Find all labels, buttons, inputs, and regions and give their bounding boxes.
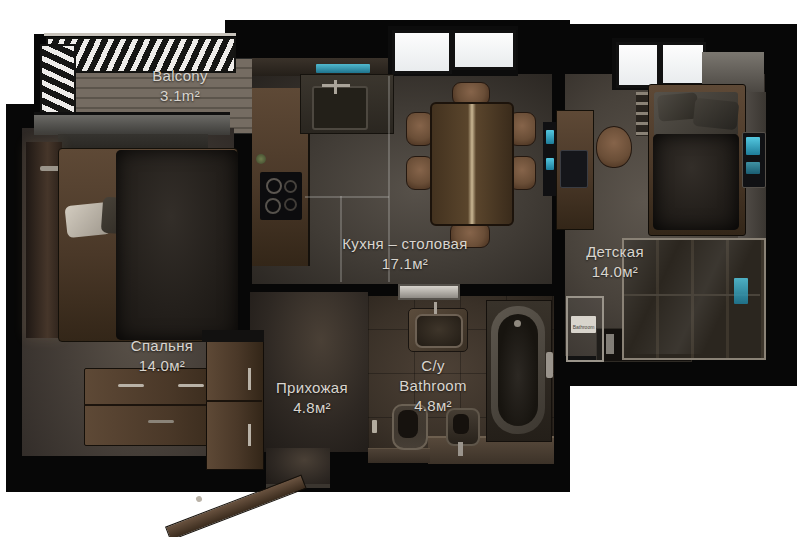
bathroom-sink-faucet <box>434 302 437 314</box>
bathroom-area: 4.8м² <box>368 396 498 416</box>
bedroom-area: 14.0м² <box>92 356 232 376</box>
entrance-door-handle <box>195 495 203 503</box>
nursery-desk-chair <box>596 126 632 168</box>
balcony-area: 3.1m² <box>110 86 250 106</box>
bidet-bowl <box>453 414 469 434</box>
kitchen-area: 17.1м² <box>320 254 490 274</box>
bedroom-fur-blanket <box>116 150 238 340</box>
balcony-name: Balcony <box>110 66 250 86</box>
wardrobe-smart-screen <box>734 278 748 304</box>
label-hallway: Прихожая 4.8м² <box>242 378 382 418</box>
oven-display-1 <box>546 130 554 144</box>
bench-handle-3 <box>148 420 174 423</box>
nursery-smart-screen-top <box>746 137 760 155</box>
nursery-blanket <box>653 134 739 230</box>
label-balcony: Balcony 3.1m² <box>110 66 250 106</box>
bathroom-door-sign-text: Bathroom <box>571 323 596 331</box>
bedroom-name: Спальня <box>92 336 232 356</box>
bathroom-door-sign: Bathroom <box>571 316 596 333</box>
kitchen-sink-basin <box>312 86 368 130</box>
kitchen-window-pane-2 <box>452 30 516 70</box>
kitchen-name: Кухня – столовая <box>320 234 490 254</box>
bathroom-mirror <box>398 284 460 300</box>
oven-display-2 <box>546 158 554 170</box>
bathroom-step-left <box>368 448 430 463</box>
bidet-faucet <box>458 442 463 456</box>
cooktop-burner-2 <box>284 180 297 193</box>
bathtub-inner <box>498 314 538 426</box>
cooktop-burner-4 <box>284 198 297 211</box>
label-bathroom: С/у Bathroom 4.8м² <box>368 356 498 416</box>
nursery-window-pane-1 <box>616 42 660 88</box>
cooktop-burner-3 <box>265 198 281 214</box>
label-nursery: Детская 14.0м² <box>545 242 685 282</box>
glass-partition-horizontal <box>305 196 389 198</box>
nursery-bed-ladder <box>636 92 648 136</box>
kitchen-smart-screen <box>316 64 370 73</box>
bedroom-headboard-panel <box>26 142 62 338</box>
bathtub-drain <box>514 320 521 327</box>
bathroom-line2: Bathroom <box>368 376 498 396</box>
dining-table <box>430 102 514 226</box>
nursery-name: Детская <box>545 242 685 262</box>
nursery-smart-screen-bottom <box>746 162 760 174</box>
kitchen-plant <box>256 154 266 164</box>
nursery-area: 14.0м² <box>545 262 685 282</box>
bench-handle-2 <box>178 384 204 387</box>
floor-plan: Balcony 3.1m² Спальня 14.0м² <box>0 0 800 537</box>
bathroom-sink-basin <box>415 314 463 348</box>
shower-mixer <box>546 352 553 378</box>
label-kitchen: Кухня – столовая 17.1м² <box>320 234 490 274</box>
hallway-name: Прихожая <box>242 378 382 398</box>
toilet-flush-plate <box>372 420 377 433</box>
bathroom-line1: С/у <box>368 356 498 376</box>
hallway-cabinet-handle-2 <box>248 424 251 446</box>
nursery-laptop <box>560 150 588 188</box>
nursery-pillow-2 <box>693 98 740 130</box>
nursery-window-pane-2 <box>660 42 706 86</box>
kitchen-window-pane-1 <box>392 30 452 74</box>
hallway-floor <box>250 292 368 452</box>
kitchen-faucet <box>334 80 337 94</box>
bench-handle-1 <box>118 384 144 387</box>
bedroom-window-band <box>34 112 230 135</box>
kitchen-cooktop <box>260 172 302 220</box>
kitchen-faucet-bar <box>322 84 350 87</box>
balcony-railing <box>44 33 236 36</box>
hallway-area: 4.8м² <box>242 398 382 418</box>
cooktop-burner-1 <box>266 178 282 194</box>
label-bedroom: Спальня 14.0м² <box>92 336 232 376</box>
